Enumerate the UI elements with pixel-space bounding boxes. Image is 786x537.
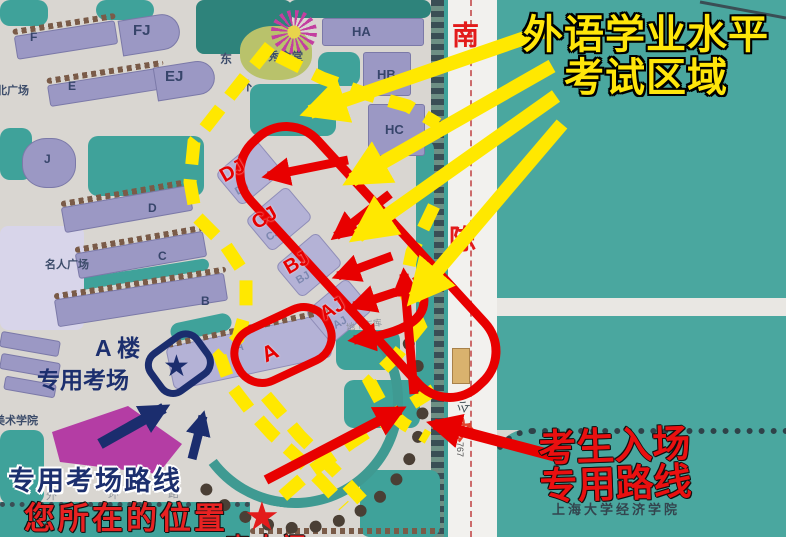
exam-area-title-line2: 考试区域 bbox=[506, 57, 786, 100]
entrance-route-label: 考生入场 专用路线 bbox=[509, 424, 722, 507]
campus-map-screenshot: F FJ E EJ HA HB HC J D C B A DJ CJ BJ AJ… bbox=[0, 0, 786, 537]
south-gate-label: 南大门 bbox=[226, 527, 310, 537]
red-arrow-to-DJ bbox=[268, 160, 348, 176]
examroom-star-icon: ★ bbox=[163, 350, 190, 383]
exam-area-title-line1: 外语学业水平 bbox=[506, 14, 786, 57]
red-arrow-to-BJ bbox=[338, 256, 392, 276]
red-arrow-to-AJ bbox=[354, 292, 396, 306]
examroom-label-line2: 专用考场 bbox=[37, 361, 129, 395]
entrance-route-line2: 专用路线 bbox=[510, 462, 721, 507]
exam-area-title: 外语学业水平 考试区域 bbox=[506, 14, 786, 100]
navy-arrow-short bbox=[192, 416, 203, 459]
your-location-label: 您所在的位置 bbox=[24, 493, 228, 537]
examroom-label-line1: A 楼 bbox=[95, 329, 140, 363]
